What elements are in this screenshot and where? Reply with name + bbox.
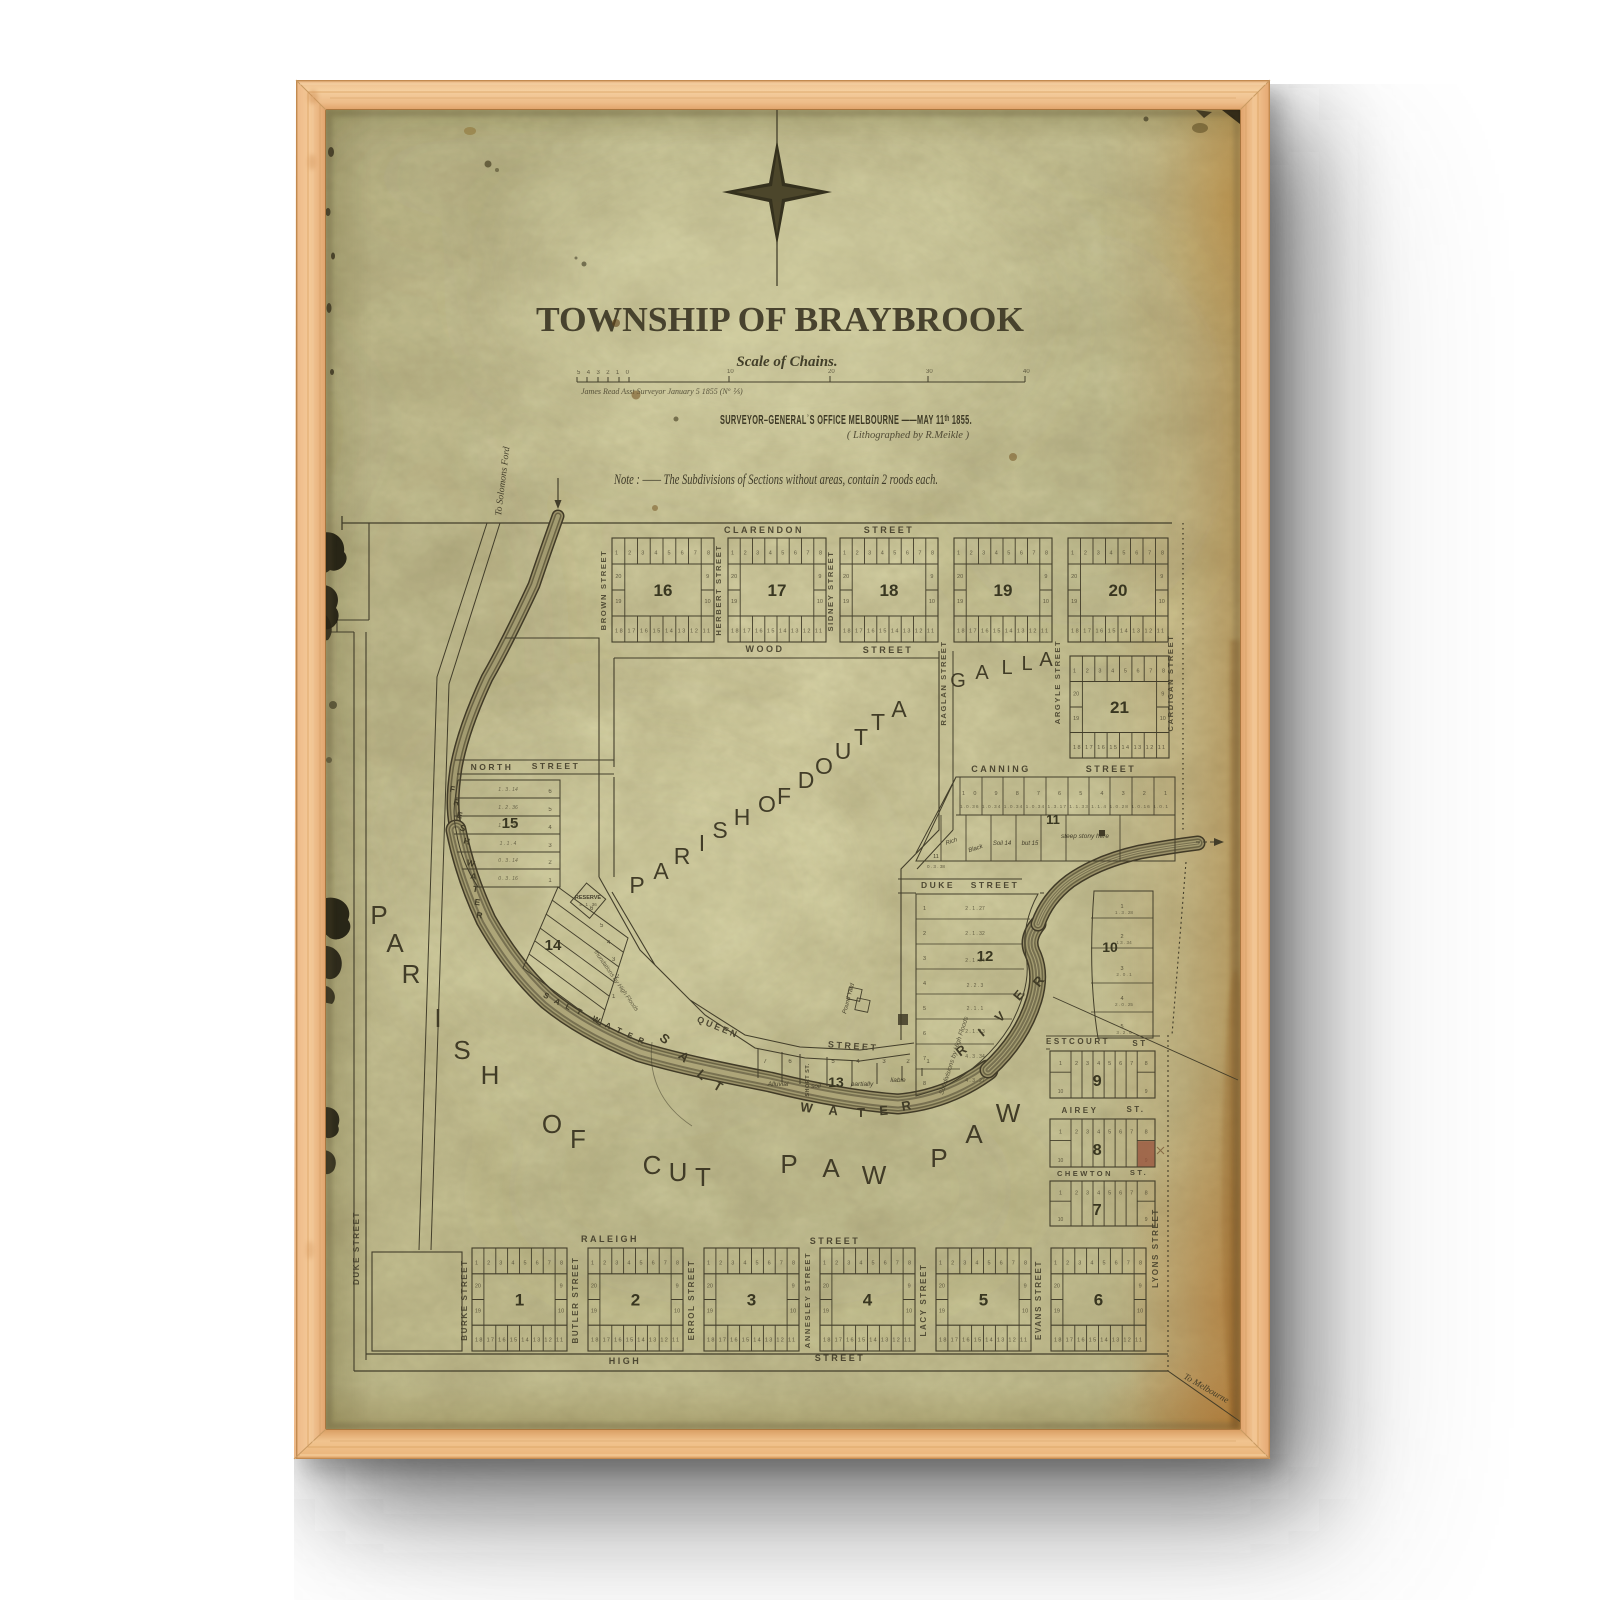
svg-text:9: 9 <box>1139 1284 1142 1290</box>
svg-text:partially: partially <box>850 1081 874 1088</box>
svg-text:9: 9 <box>1044 574 1047 580</box>
svg-text:soil: soil <box>811 1083 821 1090</box>
svg-text:T: T <box>871 709 885 735</box>
svg-text:18 17 16 15 14 13 12 11: 18 17 16 15 14 13 12 11 <box>823 1338 911 1344</box>
svg-text:AIREY: AIREY <box>1062 1106 1099 1115</box>
svg-text:9: 9 <box>908 1284 911 1290</box>
svg-text:C: C <box>643 1150 662 1180</box>
svg-text:4: 4 <box>1097 1191 1100 1197</box>
svg-text:19: 19 <box>994 581 1013 600</box>
svg-text:Soil 14: Soil 14 <box>993 841 1012 847</box>
svg-text:8: 8 <box>1145 1061 1148 1067</box>
svg-text:8: 8 <box>1145 1129 1148 1135</box>
svg-text:20: 20 <box>615 574 621 580</box>
svg-text:ST.: ST. <box>1126 1105 1145 1114</box>
svg-text:ERROL STREET: ERROL STREET <box>687 1260 696 1341</box>
svg-text:11: 11 <box>933 854 939 860</box>
svg-text:9: 9 <box>818 574 821 580</box>
svg-text:BURKE STREET: BURKE STREET <box>460 1259 469 1340</box>
svg-text:7: 7 <box>1130 1061 1133 1067</box>
svg-text:A: A <box>965 1119 983 1149</box>
svg-text:STREET: STREET <box>864 525 915 535</box>
svg-text:P: P <box>629 872 644 898</box>
svg-text:18 17 16 15 14 13 12 11: 18 17 16 15 14 13 12 11 <box>957 629 1048 635</box>
svg-text:T: T <box>854 724 868 750</box>
svg-text:20: 20 <box>731 574 737 580</box>
svg-text:2: 2 <box>631 1291 640 1310</box>
svg-text:7: 7 <box>1093 1202 1102 1219</box>
svg-text:LACY STREET: LACY STREET <box>919 1263 928 1336</box>
svg-text:1 2 3 4 5 6 7 8: 1 2 3 4 5 6 7 8 <box>591 1261 679 1267</box>
svg-text:17: 17 <box>768 581 787 600</box>
svg-text:10: 10 <box>1160 716 1166 722</box>
svg-text:1 . 2 . 36: 1 . 2 . 36 <box>498 805 518 811</box>
svg-text:19: 19 <box>957 599 963 605</box>
svg-text:3: 3 <box>1086 1191 1089 1197</box>
svg-text:SURVEYOR–GENERALʾS OFFICE ME: SURVEYOR–GENERALʾS OFFICE MELBOURNE ——MA… <box>720 413 972 427</box>
svg-text:2: 2 <box>1075 1191 1078 1197</box>
svg-text:19: 19 <box>1071 599 1077 605</box>
svg-text:20: 20 <box>828 369 835 375</box>
svg-text:STREET: STREET <box>971 880 1020 890</box>
svg-text:19: 19 <box>475 1308 481 1314</box>
svg-text:STREET: STREET <box>1086 764 1137 774</box>
svg-text:Alluvial: Alluvial <box>767 1081 789 1088</box>
svg-text:19: 19 <box>615 599 621 605</box>
svg-text:18 17 16 15 14 13 12 11: 18 17 16 15 14 13 12 11 <box>843 629 934 635</box>
svg-text:2 . 1 . 1: 2 . 1 . 1 <box>967 1006 984 1012</box>
svg-text:1 2 3 4 5 6 7 8: 1 2 3 4 5 6 7 8 <box>939 1261 1027 1267</box>
svg-text:ARGYLE STREET: ARGYLE STREET <box>1053 640 1062 725</box>
svg-text:20: 20 <box>1073 691 1079 697</box>
svg-text:P: P <box>780 1149 797 1179</box>
svg-text:G: G <box>950 670 966 692</box>
svg-text:20: 20 <box>1071 574 1077 580</box>
svg-text:0 . 3 . 14: 0 . 3 . 14 <box>498 858 518 864</box>
svg-text:NORTH: NORTH <box>471 762 514 772</box>
svg-text:R: R <box>674 843 691 869</box>
svg-text:ESTCOURT: ESTCOURT <box>1046 1037 1110 1046</box>
svg-text:T: T <box>857 1105 865 1120</box>
svg-text:9: 9 <box>1160 574 1163 580</box>
svg-text:10: 10 <box>906 1308 912 1314</box>
svg-text:H: H <box>481 1060 500 1090</box>
svg-text:10: 10 <box>929 599 935 605</box>
svg-text:9: 9 <box>560 1284 563 1290</box>
svg-text:8: 8 <box>1145 1191 1148 1197</box>
svg-text:3 . 2 . 6: 3 . 2 . 6 <box>1116 1030 1132 1035</box>
svg-text:RALEIGH: RALEIGH <box>581 1234 639 1244</box>
svg-text:18 17 16 15 14 13 12 11: 18 17 16 15 14 13 12 11 <box>1071 629 1164 635</box>
svg-text:1: 1 <box>923 906 926 912</box>
svg-text:19: 19 <box>1054 1308 1060 1314</box>
svg-text:10: 10 <box>817 599 823 605</box>
svg-text:18 17 16 15 14 13 12 11: 18 17 16 15 14 13 12 11 <box>939 1338 1027 1344</box>
svg-text:19: 19 <box>823 1308 829 1314</box>
svg-text:20: 20 <box>1109 581 1128 600</box>
svg-text:1 2 3 4 5 6 7 8: 1 2 3 4 5 6 7 8 <box>475 1261 563 1267</box>
svg-text:CLARENDON: CLARENDON <box>724 525 804 535</box>
svg-text:9: 9 <box>1145 1217 1148 1223</box>
svg-text:18 17 16 15 14 13 12 11: 18 17 16 15 14 13 12 11 <box>615 629 710 635</box>
svg-text:3: 3 <box>747 1291 756 1310</box>
svg-text:14: 14 <box>545 937 562 954</box>
svg-text:Note : —— The Subdivisions of: Note : —— The Subdivisions of Sections w… <box>613 472 938 488</box>
svg-text:RESERVE: RESERVE <box>575 895 602 901</box>
svg-text:S: S <box>453 1035 470 1065</box>
svg-text:9: 9 <box>676 1284 679 1290</box>
svg-text:4: 4 <box>923 981 926 987</box>
svg-text:19: 19 <box>707 1308 713 1314</box>
svg-text:0 . 3 . 38: 0 . 3 . 38 <box>927 864 945 869</box>
svg-text:1 . 3 . 28: 1 . 3 . 28 <box>1115 910 1133 915</box>
svg-text:5: 5 <box>1108 1129 1111 1135</box>
svg-text:4 . 3 . 34: 4 . 3 . 34 <box>965 1054 985 1060</box>
svg-text:1 . 1 . 4: 1 . 1 . 4 <box>500 841 517 847</box>
svg-text:A: A <box>386 928 404 958</box>
svg-text:20: 20 <box>843 574 849 580</box>
svg-text:10: 10 <box>1058 1217 1064 1223</box>
svg-text:P: P <box>930 1143 947 1173</box>
svg-text:1 2 3 4 5 6 7 8: 1 2 3 4 5 6 7 8 <box>823 1261 911 1267</box>
svg-text:21: 21 <box>1110 698 1129 717</box>
svg-text:6: 6 <box>1094 1291 1103 1310</box>
svg-text:WOOD: WOOD <box>746 644 785 654</box>
svg-text:1 2 3 4 5 6 7 8: 1 2 3 4 5 6 7 8 <box>1073 668 1165 674</box>
svg-text:O: O <box>815 753 833 779</box>
svg-text:I: I <box>434 1003 441 1033</box>
svg-text:2 . 0 . 25: 2 . 0 . 25 <box>1115 1002 1133 1007</box>
svg-text:ST.: ST. <box>1130 1168 1148 1177</box>
svg-text:HIGH: HIGH <box>609 1356 642 1366</box>
svg-text:1 2 3 4 5 6 7 8: 1 2 3 4 5 6 7 8 <box>731 551 822 557</box>
svg-text:10: 10 <box>790 1308 796 1314</box>
svg-text:BROWN STREET: BROWN STREET <box>599 550 608 631</box>
svg-text:6: 6 <box>1119 1191 1122 1197</box>
svg-text:ANNESLEY STREET: ANNESLEY STREET <box>803 1252 812 1348</box>
svg-text:19: 19 <box>843 599 849 605</box>
svg-text:10: 10 <box>1137 1308 1143 1314</box>
svg-text:10: 10 <box>1058 1158 1064 1164</box>
svg-text:1: 1 <box>515 1291 524 1310</box>
svg-text:4: 4 <box>1097 1129 1100 1135</box>
svg-text:7: 7 <box>1130 1129 1133 1135</box>
svg-text:CANNING: CANNING <box>971 764 1031 774</box>
svg-text:40: 40 <box>1023 369 1030 375</box>
svg-text:7: 7 <box>923 1056 926 1062</box>
svg-text:LYONS STREET: LYONS STREET <box>1151 1208 1160 1288</box>
svg-text:1 3 . 34: 1 3 . 34 <box>1116 940 1132 945</box>
svg-text:I: I <box>699 830 705 856</box>
svg-text:A: A <box>822 1153 840 1183</box>
svg-text:1 2 3 4 5 6 7 8: 1 2 3 4 5 6 7 8 <box>615 551 710 557</box>
svg-text:19: 19 <box>731 599 737 605</box>
svg-text:D: D <box>798 767 815 793</box>
svg-text:ST: ST <box>1132 1039 1147 1048</box>
svg-text:1: 1 <box>1059 1061 1062 1067</box>
svg-text:19: 19 <box>939 1308 945 1314</box>
svg-text:EVANS STREET: EVANS STREET <box>1034 1260 1043 1340</box>
svg-text:19: 19 <box>1073 716 1079 722</box>
svg-text:5: 5 <box>1108 1061 1111 1067</box>
svg-text:20: 20 <box>1054 1284 1060 1290</box>
svg-text:3: 3 <box>1086 1061 1089 1067</box>
svg-text:4: 4 <box>1097 1061 1100 1067</box>
svg-text:A: A <box>1039 649 1053 671</box>
svg-text:9: 9 <box>1024 1284 1027 1290</box>
svg-text:18 17 16 15 14 13 12 11: 18 17 16 15 14 13 12 11 <box>707 1338 795 1344</box>
svg-text:1 . 3 . 14: 1 . 3 . 14 <box>498 787 518 793</box>
svg-text:T: T <box>695 1162 711 1192</box>
svg-text:E: E <box>879 1103 889 1119</box>
svg-text:12: 12 <box>977 948 994 965</box>
svg-text:20: 20 <box>475 1284 481 1290</box>
svg-text:10: 10 <box>674 1308 680 1314</box>
svg-text:3: 3 <box>923 956 926 962</box>
svg-text:SIDNEY STREET: SIDNEY STREET <box>826 550 835 631</box>
svg-text:A: A <box>975 662 989 684</box>
svg-text:5: 5 <box>923 1006 926 1012</box>
svg-text:7: 7 <box>1130 1191 1133 1197</box>
svg-text:6: 6 <box>1119 1061 1122 1067</box>
svg-text:4 . 3 . 27: 4 . 3 . 27 <box>965 1078 985 1084</box>
svg-text:HERBERT STREET: HERBERT STREET <box>714 544 723 635</box>
svg-text:30: 30 <box>926 369 933 375</box>
svg-text:1 2 3 4 5 6 7 8: 1 2 3 4 5 6 7 8 <box>1071 551 1164 557</box>
svg-text:CHEWTON: CHEWTON <box>1057 1169 1113 1178</box>
svg-text:A: A <box>891 696 907 722</box>
svg-text:20: 20 <box>707 1284 713 1290</box>
svg-text:DUKE: DUKE <box>921 880 955 890</box>
svg-text:1 2 3 4 5 6 7 8: 1 2 3 4 5 6 7 8 <box>957 551 1048 557</box>
svg-text:1 2 3 4 5 6 7 8: 1 2 3 4 5 6 7 8 <box>707 1261 795 1267</box>
svg-text:10: 10 <box>705 599 711 605</box>
svg-text:19: 19 <box>591 1308 597 1314</box>
svg-text:1: 1 <box>1059 1129 1062 1135</box>
svg-text:20: 20 <box>939 1284 945 1290</box>
svg-text:but 15: but 15 <box>1022 841 1039 847</box>
svg-text:2 . 2 . 3: 2 . 2 . 3 <box>967 983 984 989</box>
svg-text:liable: liable <box>890 1077 906 1084</box>
svg-text:6: 6 <box>1119 1129 1122 1135</box>
svg-text:10: 10 <box>727 369 734 375</box>
svg-text:18 17 16 15 14 13 12 11: 18 17 16 15 14 13 12 11 <box>475 1338 563 1344</box>
svg-text:STREET: STREET <box>863 645 914 655</box>
svg-text:O: O <box>758 791 776 817</box>
svg-text:18 17 16 15 14 13 12 11: 18 17 16 15 14 13 12 11 <box>1073 745 1165 751</box>
svg-text:2: 2 <box>923 931 926 937</box>
svg-text:8: 8 <box>1093 1142 1102 1159</box>
svg-text:2 . 0 . 1: 2 . 0 . 1 <box>1116 972 1132 977</box>
svg-text:9: 9 <box>1093 1073 1102 1090</box>
svg-text:9: 9 <box>1145 1089 1148 1095</box>
svg-text:1: 1 <box>1059 1191 1062 1197</box>
svg-text:2: 2 <box>1075 1129 1078 1135</box>
svg-text:U: U <box>835 738 852 764</box>
svg-text:L: L <box>1021 653 1032 675</box>
svg-text:RAGLAN STREET: RAGLAN STREET <box>939 640 948 725</box>
svg-text:5: 5 <box>1108 1191 1111 1197</box>
svg-text:( Lithographed by R.Meikle ): ( Lithographed by R.Meikle ) <box>847 430 970 441</box>
svg-text:18: 18 <box>880 581 899 600</box>
svg-text:Scale of Chains.: Scale of Chains. <box>736 354 837 370</box>
svg-text:8: 8 <box>923 1081 926 1087</box>
svg-text:2: 2 <box>1075 1061 1078 1067</box>
svg-text:DUKE STREET: DUKE STREET <box>352 1211 361 1285</box>
svg-text:1 2 3 4 5 6 7 8: 1 2 3 4 5 6 7 8 <box>843 551 934 557</box>
svg-text:11: 11 <box>1046 812 1060 827</box>
svg-text:L: L <box>1001 657 1012 679</box>
svg-text:2 . 1 . 27: 2 . 1 . 27 <box>965 906 985 912</box>
svg-text:A: A <box>828 1103 839 1119</box>
svg-text:20: 20 <box>957 574 963 580</box>
svg-text:10: 10 <box>1022 1308 1028 1314</box>
svg-text:16: 16 <box>654 581 673 600</box>
svg-text:20: 20 <box>823 1284 829 1290</box>
svg-text:9: 9 <box>792 1284 795 1290</box>
svg-text:1 2 3 4 5 6 7 8: 1 2 3 4 5 6 7 8 <box>1054 1261 1142 1267</box>
svg-text:P: P <box>370 900 387 930</box>
svg-text:STREET: STREET <box>815 1353 866 1363</box>
svg-text:10: 10 <box>558 1308 564 1314</box>
svg-text:1 . 1 . 33: 1 . 1 . 33 <box>498 823 518 829</box>
svg-text:S: S <box>712 817 727 843</box>
svg-text:9: 9 <box>706 574 709 580</box>
svg-text:STREET: STREET <box>810 1236 861 1246</box>
svg-text:2 . 1 . 32: 2 . 1 . 32 <box>965 931 985 937</box>
svg-text:A: A <box>653 858 669 884</box>
svg-text:BUTLER STREET: BUTLER STREET <box>571 1256 580 1343</box>
svg-text:10: 10 <box>1159 599 1165 605</box>
svg-text:10: 10 <box>1058 1089 1064 1095</box>
svg-text:CARDIGAN STREET: CARDIGAN STREET <box>1166 635 1175 732</box>
svg-text:4: 4 <box>863 1291 873 1310</box>
svg-text:H: H <box>734 804 751 830</box>
svg-text:SHORT ST.: SHORT ST. <box>805 1063 811 1096</box>
svg-text:18 17 16 15 14 13 12 11: 18 17 16 15 14 13 12 11 <box>1054 1338 1142 1344</box>
svg-text:F: F <box>570 1124 586 1154</box>
svg-text:1.0.36 1.0.34 1.0.34 1.0.34 1.: 1.0.36 1.0.34 1.0.34 1.0.34 1.3.17 1.1.3… <box>960 804 1168 810</box>
svg-text:18 17 16 15 14 13 12 11: 18 17 16 15 14 13 12 11 <box>731 629 822 635</box>
svg-text:O: O <box>542 1109 562 1139</box>
svg-text:5: 5 <box>979 1291 988 1310</box>
svg-text:U: U <box>669 1157 688 1187</box>
svg-text:18 17 16 15 14 13 12 11: 18 17 16 15 14 13 12 11 <box>591 1338 679 1344</box>
svg-text:W: W <box>996 1098 1021 1128</box>
svg-text:3: 3 <box>1086 1129 1089 1135</box>
svg-text:F: F <box>777 783 791 809</box>
svg-text:R: R <box>402 959 421 989</box>
svg-text:20: 20 <box>591 1284 597 1290</box>
svg-text:6: 6 <box>923 1031 926 1037</box>
svg-text:13: 13 <box>828 1074 844 1090</box>
svg-text:9: 9 <box>930 574 933 580</box>
svg-text:9: 9 <box>1161 691 1164 697</box>
svg-text:W: W <box>862 1160 887 1190</box>
svg-text:TOWNSHIP OF BRAYBROOK: TOWNSHIP OF BRAYBROOK <box>536 300 1024 339</box>
svg-text:0 . 3 . 16: 0 . 3 . 16 <box>498 876 518 882</box>
svg-text:STREET: STREET <box>532 761 581 771</box>
svg-text:10: 10 <box>1043 599 1049 605</box>
svg-text:James Read Asst Surveyor J: James Read Asst Surveyor January 5 1855 … <box>581 387 743 396</box>
